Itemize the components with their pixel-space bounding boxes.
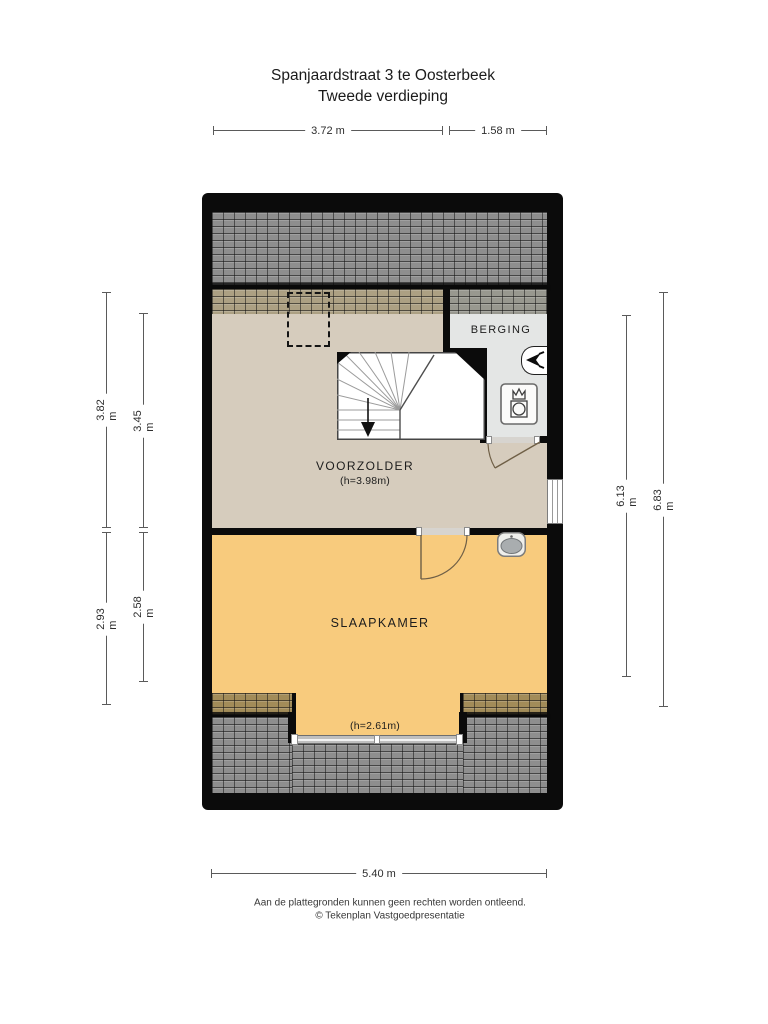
dimension-label: 1.58 m — [475, 124, 521, 138]
dimension-label: 3.45 m — [131, 404, 157, 437]
berging-wall-left — [443, 287, 450, 355]
dormer-height-note: (h=2.61m) — [350, 720, 400, 732]
voorzolder-window — [547, 479, 563, 524]
dimension-label: 3.82 m — [94, 393, 120, 426]
dimension-top-right: 1.58 m — [449, 126, 547, 135]
mechanical-ventilation-unit — [521, 346, 547, 375]
dashed-void-outline — [287, 292, 330, 347]
roof-hatch-over-storage — [447, 289, 547, 314]
dimension-label: 3.72 m — [305, 124, 351, 138]
footer-copyright: © Tekenplan Vastgoedpresentatie — [315, 911, 464, 922]
berging-door — [483, 438, 545, 474]
dimension-right-outer: 6.83 m — [659, 292, 668, 707]
room-slaapkamer-floor — [212, 535, 547, 693]
roof-hatch-bottom-right — [463, 717, 547, 793]
dimension-bottom: 5.40 m — [211, 869, 547, 878]
sink-icon — [497, 532, 526, 557]
roof-hatch-top — [212, 212, 547, 285]
page-title: Spanjaardstraat 3 te Oosterbeek — [271, 67, 495, 85]
room-label-slaapkamer: SLAAPKAMER — [331, 616, 430, 630]
dimension-label: 5.40 m — [356, 867, 402, 881]
window-jamb — [291, 734, 298, 745]
dimension-left-inner-bottom: 2.58 m — [139, 532, 148, 682]
dimension-left-inner-top: 3.45 m — [139, 313, 148, 528]
window-mullion — [374, 735, 380, 744]
floorplan-page: Spanjaardstraat 3 te Oosterbeek Tweede v… — [0, 0, 768, 1024]
boiler-icon — [500, 383, 538, 425]
dimension-label: 6.13 m — [614, 479, 640, 512]
dimension-right-inner: 6.13 m — [622, 315, 631, 677]
slaapkamer-door — [415, 530, 475, 585]
mechanical-ventilation-icon — [522, 347, 545, 373]
window-jamb — [456, 734, 463, 745]
staircase — [337, 352, 485, 440]
roof-hatch-bottom-left — [212, 717, 292, 793]
room-label-voorzolder: VOORZOLDER — [316, 459, 414, 473]
room-height-voorzolder: (h=3.98m) — [340, 475, 390, 487]
room-label-berging: BERGING — [471, 324, 532, 336]
dimension-label: 6.83 m — [651, 483, 677, 516]
dimension-top-left: 3.72 m — [213, 126, 443, 135]
dimension-label: 2.58 m — [131, 590, 157, 623]
roof-hatch-bottom-middle — [292, 744, 463, 793]
dimension-left-outer-top: 3.82 m — [102, 292, 111, 528]
dimension-left-outer-bottom: 2.93 m — [102, 532, 111, 705]
footer-disclaimer: Aan de plattegronden kunnen geen rechten… — [254, 898, 526, 909]
dimension-label: 2.93 m — [94, 602, 120, 635]
page-subtitle: Tweede verdieping — [318, 88, 448, 106]
